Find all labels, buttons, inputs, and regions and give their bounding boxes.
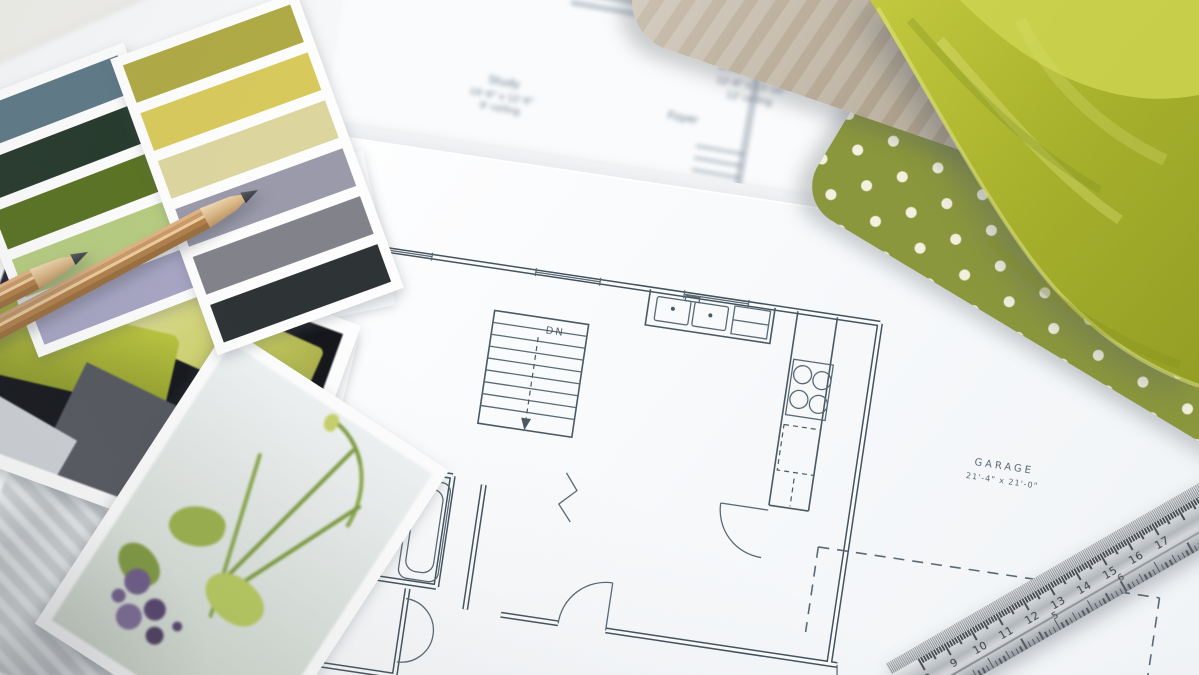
ruler-number: 9 — [948, 655, 961, 670]
ruler-tick — [998, 658, 1002, 664]
ruler-tick — [1177, 555, 1181, 561]
door-swing-kitchen — [714, 503, 769, 558]
ruler-tick — [1019, 646, 1023, 652]
stairs-down-label: DN — [545, 325, 566, 339]
ruler-tick — [1011, 651, 1015, 657]
chartreuse-linen-fabric — [820, 0, 1199, 420]
ruler-tick — [1077, 612, 1081, 618]
ruler-tick — [1086, 608, 1090, 614]
ruler-tick — [1186, 550, 1190, 556]
ruler-tick — [1102, 598, 1106, 604]
ruler-tick — [1115, 591, 1119, 597]
ruler-tick — [1048, 629, 1052, 635]
ruler-tick — [1098, 600, 1102, 606]
foyer-label: Foyer — [667, 109, 700, 127]
ruler-tick — [1028, 641, 1032, 647]
ruler-tick — [1136, 579, 1140, 585]
ruler-tick — [986, 665, 990, 671]
ruler-tick — [1065, 620, 1069, 626]
ruler-tick — [1044, 632, 1048, 638]
designer-desk-photo: Living Room Study 14'-6" x 12'-6" 9' cei… — [0, 0, 1199, 675]
ruler-tick — [1161, 564, 1165, 570]
ruler-tick — [1194, 545, 1198, 551]
ruler-tick — [982, 668, 986, 674]
kitchen — [622, 289, 841, 511]
ruler-tick — [1039, 631, 1045, 639]
ruler-tick — [1111, 593, 1115, 599]
ruler-tick — [1094, 603, 1098, 609]
ruler-tick — [1119, 588, 1123, 594]
ruler-tick — [1069, 617, 1073, 623]
study-label: Study — [488, 73, 522, 91]
ruler-tick — [1172, 555, 1178, 563]
ruler-tick — [1005, 651, 1011, 659]
ruler-tick — [1144, 574, 1148, 580]
ruler-tick — [1082, 610, 1086, 616]
ruler-tick — [1036, 636, 1040, 642]
ruler-tick — [1148, 572, 1152, 578]
ruler-number: 8 — [922, 670, 935, 675]
ruler-tick — [1061, 622, 1065, 628]
door-swing-bottom — [558, 576, 613, 631]
ruler-tick — [994, 660, 998, 666]
ruler-tick — [1032, 639, 1036, 645]
ruler-tick — [1127, 584, 1131, 590]
ruler-tick — [1181, 552, 1185, 558]
ruler-tick — [1138, 574, 1144, 582]
ruler-tick — [1165, 562, 1169, 568]
ruler-tick — [1152, 569, 1156, 575]
ruler-tick — [1131, 581, 1135, 587]
staircase — [478, 310, 589, 437]
ruler-tick — [1003, 656, 1007, 662]
ruler-tick — [1015, 648, 1019, 654]
ruler-tick — [1169, 560, 1173, 566]
ruler-tick — [1052, 627, 1056, 633]
ruler-tick — [1072, 612, 1078, 620]
ruler-tick — [1105, 593, 1111, 601]
ruler-tick — [978, 670, 982, 675]
